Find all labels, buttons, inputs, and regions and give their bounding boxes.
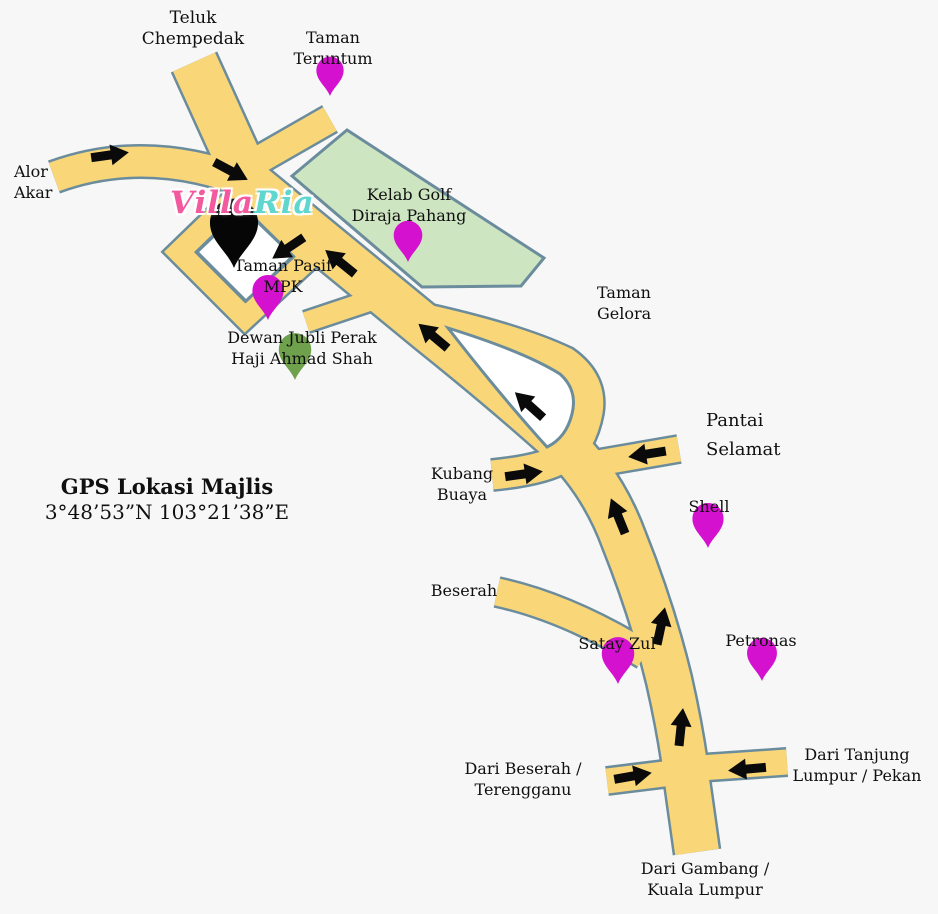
logo-ria-text: Ria <box>254 185 315 221</box>
label-taman-pasif-mpk: Taman Pasif MPK <box>234 255 332 297</box>
label-dari-beserah: Dari Beserah / Terengganu <box>464 758 581 800</box>
logo-villa-text: Villa <box>170 185 254 221</box>
route-map: Teluk Chempedak Taman Teruntum Alor Akar… <box>0 0 938 914</box>
gps-coordinates: 3°48’53”N 103°21’38”E <box>45 499 289 526</box>
label-pantai-selamat: Pantai Selamat <box>706 406 781 464</box>
gps-location-block: GPS Lokasi Majlis 3°48’53”N 103°21’38”E <box>45 474 289 526</box>
label-beserah: Beserah <box>431 580 497 601</box>
label-dewan-jubli: Dewan Jubli Perak Haji Ahmad Shah <box>227 327 377 369</box>
label-teluk-chempedak: Teluk Chempedak <box>142 8 244 50</box>
label-satay-zul: Satay Zul <box>578 633 655 654</box>
label-kelab-golf: Kelab Golf Diraja Pahang <box>352 184 467 226</box>
label-petronas: Petronas <box>725 630 796 651</box>
label-dari-gambang: Dari Gambang / Kuala Lumpur <box>641 858 770 900</box>
label-dari-tanjung: Dari Tanjung Lumpur / Pekan <box>793 744 922 786</box>
gps-title: GPS Lokasi Majlis <box>45 474 289 499</box>
label-alor-akar: Alor Akar <box>14 161 52 203</box>
villa-ria-logo: VillaRia <box>170 186 315 220</box>
label-kubang-buaya: Kubang Buaya <box>431 463 493 505</box>
label-shell: Shell <box>689 496 730 517</box>
label-taman-gelora: Taman Gelora <box>597 282 651 324</box>
road-taman-pasif-access <box>306 298 378 322</box>
label-taman-teruntum: Taman Teruntum <box>293 27 372 69</box>
